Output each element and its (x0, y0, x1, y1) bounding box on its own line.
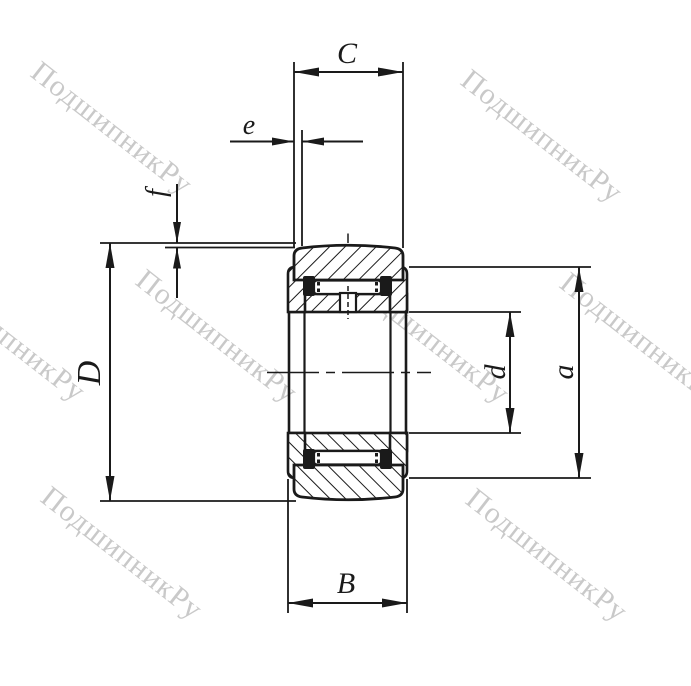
dimension-label-C: C (337, 37, 358, 70)
cage-dot (375, 282, 378, 286)
dimension-label-a: a (547, 365, 580, 380)
bearing-cross-section-drawing: C e f D B d a (0, 0, 691, 686)
dimension-label-f: f (141, 186, 172, 197)
page: { "drawing": { "title": "bearing cross-s… (0, 0, 691, 686)
extension-lines (100, 62, 591, 613)
dimension-label-d: d (479, 364, 512, 380)
cage-dot (317, 282, 320, 286)
dim-f (173, 184, 181, 298)
dimension-label-D: D (71, 360, 108, 386)
bearing-half-section-mirror (288, 433, 407, 500)
cage-dot (317, 289, 320, 293)
dimension-label-B: B (337, 567, 355, 600)
cage-dot (375, 289, 378, 293)
outer-ring-section (294, 245, 403, 280)
dimension-label-e: e (243, 110, 255, 141)
